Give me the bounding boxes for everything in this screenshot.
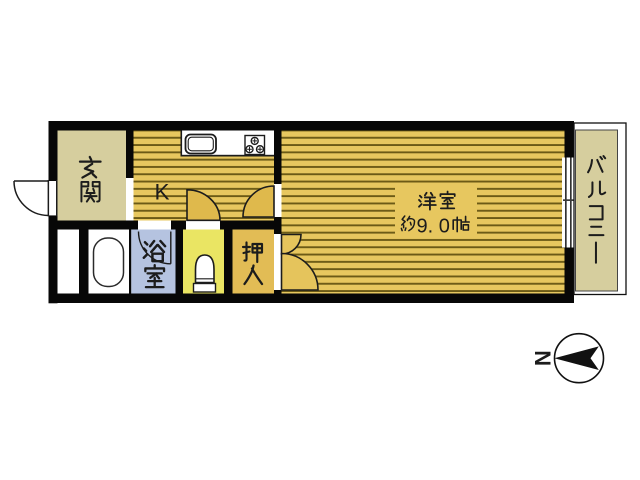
svg-text:K: K — [155, 180, 170, 205]
svg-text:N: N — [530, 350, 555, 366]
svg-text:9. 0: 9. 0 — [417, 215, 450, 237]
